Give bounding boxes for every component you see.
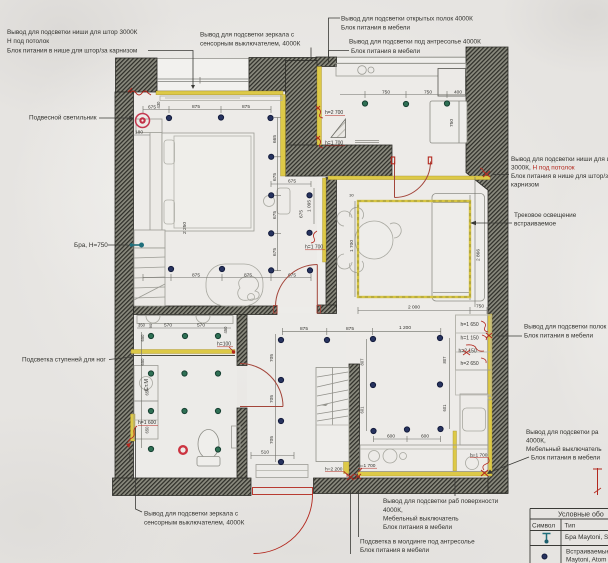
svg-text:сенсорным выключателем, 4000К: сенсорным выключателем, 4000К	[200, 41, 301, 48]
svg-text:2 866: 2 866	[476, 249, 482, 261]
svg-text:встраиваемое: встраиваемое	[514, 221, 557, 228]
svg-text:601: 601	[442, 404, 447, 412]
svg-text:350: 350	[138, 323, 146, 328]
svg-text:Вывод для подсветки ниши для ш: Вывод для подсветки ниши для штор 3000К	[7, 29, 138, 36]
svg-text:Блок питания в нише для штор/з: Блок питания в нише для штор/за карнизом	[7, 48, 137, 55]
svg-text:650: 650	[145, 388, 150, 396]
svg-text:1 200: 1 200	[399, 325, 411, 331]
svg-text:700: 700	[128, 453, 133, 461]
svg-text:675: 675	[299, 210, 305, 218]
svg-text:Вывод для подсветки ниши для ш: Вывод для подсветки ниши для шт	[511, 156, 608, 163]
svg-text:Блок питания в мебели: Блок питания в мебели	[360, 546, 430, 554]
svg-text:675: 675	[272, 248, 278, 256]
svg-text:Подсветка в молдинге под антре: Подсветка в молдинге под антресолье	[360, 539, 475, 546]
svg-text:3000К, Н под потолок: 3000К, Н под потолок	[511, 165, 575, 172]
svg-text:Подвесной светильник: Подвесной светильник	[29, 114, 97, 122]
svg-text:807: 807	[360, 358, 365, 366]
svg-text:705: 705	[269, 395, 275, 403]
svg-text:Бра Maytoni, Ste: Бра Maytoni, Ste	[565, 534, 608, 541]
svg-text:875: 875	[192, 104, 200, 110]
svg-text:Вывод для подсветки под антрес: Вывод для подсветки под антресолье 4000К	[349, 39, 481, 46]
svg-text:Н под потолок: Н под потолок	[7, 38, 49, 45]
svg-text:Бра, Н=750: Бра, Н=750	[74, 242, 108, 249]
svg-text:4000К,: 4000К,	[526, 438, 546, 445]
svg-text:Maytoni, Atom: Maytoni, Atom	[566, 557, 607, 563]
svg-text:Встраиваемые п: Встраиваемые п	[566, 549, 608, 556]
svg-text:Блок питания в мебели: Блок питания в мебели	[341, 24, 411, 32]
svg-text:Трековое освещение: Трековое освещение	[514, 212, 577, 219]
svg-text:601: 601	[360, 406, 365, 414]
svg-text:180: 180	[135, 130, 143, 136]
svg-text:Условные обо: Условные обо	[558, 511, 604, 519]
svg-text:2 000: 2 000	[408, 305, 420, 311]
svg-text:875: 875	[300, 326, 308, 332]
svg-text:90: 90	[148, 323, 153, 328]
svg-text:Вывод для подсветки раб поверх: Вывод для подсветки раб поверхности	[383, 497, 499, 505]
svg-text:Блок питания в мебели: Блок питания в мебели	[351, 47, 421, 55]
svg-text:сенсорным выключателем, 4000К: сенсорным выключателем, 4000К	[144, 520, 245, 527]
svg-text:705: 705	[269, 354, 275, 362]
svg-text:Блок питания в мебели: Блок питания в мебели	[524, 332, 594, 340]
svg-text:675: 675	[288, 179, 296, 185]
svg-text:675: 675	[272, 173, 278, 181]
svg-text:750: 750	[382, 90, 390, 96]
svg-text:h=1 650: h=1 650	[461, 322, 479, 328]
svg-text:600: 600	[387, 434, 395, 440]
svg-text:807: 807	[442, 356, 447, 364]
svg-text:875: 875	[346, 326, 354, 332]
svg-text:875: 875	[242, 104, 250, 110]
svg-text:570: 570	[197, 323, 205, 329]
svg-text:705: 705	[269, 436, 275, 444]
svg-text:650: 650	[145, 426, 150, 434]
svg-text:750: 750	[449, 119, 455, 127]
svg-text:Блок питания в мебели: Блок питания в мебели	[531, 454, 601, 462]
svg-text:Блок питания в мебели: Блок питания в мебели	[383, 523, 453, 531]
svg-text:h=1 150: h=1 150	[461, 336, 479, 342]
svg-text:450: 450	[223, 326, 228, 334]
svg-text:600: 600	[421, 434, 429, 440]
svg-text:Мебельный выключатель: Мебельный выключатель	[526, 445, 602, 453]
svg-text:875: 875	[244, 273, 252, 279]
svg-text:Мебельный выключатель: Мебельный выключатель	[383, 515, 459, 523]
svg-text:Блок питания в нише для штор/з: Блок питания в нише для штор/за	[511, 173, 608, 180]
svg-text:Символ: Символ	[532, 523, 555, 530]
svg-text:Вывод для подсветки зеркала с: Вывод для подсветки зеркала с	[144, 511, 239, 518]
svg-text:675: 675	[272, 211, 278, 219]
svg-text:h=2 650: h=2 650	[461, 361, 479, 367]
svg-text:650: 650	[140, 358, 145, 366]
svg-text:875: 875	[192, 273, 200, 279]
svg-text:4000К,: 4000К,	[383, 507, 403, 514]
svg-text:750: 750	[424, 90, 432, 96]
svg-text:Тип: Тип	[565, 523, 576, 530]
svg-text:570: 570	[164, 323, 172, 329]
svg-text:665: 665	[272, 135, 278, 143]
svg-text:1 700: 1 700	[349, 240, 355, 252]
svg-text:Вывод для подсветки ра: Вывод для подсветки ра	[526, 429, 599, 436]
svg-text:400: 400	[454, 90, 462, 96]
svg-text:Вывод для подсветки зеркала с: Вывод для подсветки зеркала с	[200, 32, 295, 39]
svg-text:510: 510	[261, 450, 269, 456]
svg-text:Вывод для подсветки полок 40: Вывод для подсветки полок 40	[524, 324, 608, 331]
svg-text:650: 650	[140, 334, 145, 342]
svg-text:430: 430	[156, 101, 161, 109]
svg-text:карнизом: карнизом	[511, 182, 539, 189]
svg-text:1 095: 1 095	[307, 200, 313, 212]
svg-text:Подсветка ступеней для ног: Подсветка ступеней для ног	[22, 356, 106, 364]
svg-text:30: 30	[349, 193, 354, 198]
svg-text:750: 750	[476, 304, 484, 310]
svg-text:2 250: 2 250	[182, 222, 188, 234]
svg-text:Вывод для подсветки открытых п: Вывод для подсветки открытых полок 4000К	[341, 16, 473, 23]
